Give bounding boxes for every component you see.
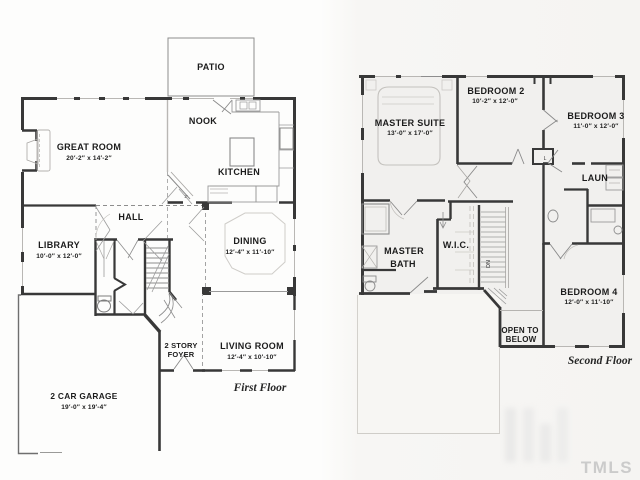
svg-text:2 CAR GARAGE: 2 CAR GARAGE [50,391,117,401]
svg-text:Second Floor: Second Floor [568,355,633,367]
svg-text:13′-0″ x 17′-0″: 13′-0″ x 17′-0″ [387,130,433,137]
svg-text:PATIO: PATIO [197,62,225,72]
svg-text:2′: 2′ [184,194,188,199]
svg-text:19′-0″ x 19′-4″: 19′-0″ x 19′-4″ [61,404,107,411]
svg-text:BELOW: BELOW [506,335,537,344]
svg-text:12′-0″ x 11′-10″: 12′-0″ x 11′-10″ [564,299,613,306]
svg-text:10′-2″ x 12′-0″: 10′-2″ x 12′-0″ [472,98,518,105]
svg-text:LIVING ROOM: LIVING ROOM [220,341,284,351]
svg-text:L: L [544,156,547,162]
svg-text:20′-2″ x 14′-2″: 20′-2″ x 14′-2″ [66,155,112,162]
svg-text:LIBRARY: LIBRARY [38,240,80,250]
svg-text:DINING: DINING [233,236,266,246]
svg-text:MASTER: MASTER [384,246,424,256]
svg-text:11′-0″ x 12′-0″: 11′-0″ x 12′-0″ [573,123,618,130]
svg-text:MASTER SUITE: MASTER SUITE [375,118,446,128]
svg-text:TMLS: TMLS [581,458,633,477]
svg-text:First Floor: First Floor [233,382,287,394]
svg-text:BEDROOM 2: BEDROOM 2 [467,86,524,96]
svg-text:HALL: HALL [118,212,143,222]
svg-text:12′-4″ x 11′-10″: 12′-4″ x 11′-10″ [225,249,274,256]
svg-text:BATH: BATH [390,259,416,269]
svg-text:FOYER: FOYER [168,350,195,359]
svg-text:12′-4″ x 10′-10″: 12′-4″ x 10′-10″ [227,354,276,361]
svg-text:OPEN TO: OPEN TO [501,326,538,335]
svg-text:W.I.C.: W.I.C. [443,240,469,250]
svg-text:BEDROOM 4: BEDROOM 4 [560,287,617,297]
svg-text:LAUN: LAUN [582,173,608,183]
svg-text:NOOK: NOOK [189,116,217,126]
svg-text:KITCHEN: KITCHEN [218,167,260,177]
svg-text:BEDROOM 3: BEDROOM 3 [567,111,624,121]
svg-text:DN: DN [486,260,492,268]
svg-text:10′-0″ x 12′-0″: 10′-0″ x 12′-0″ [36,253,82,260]
svg-text:2 STORY: 2 STORY [164,341,197,350]
svg-text:GREAT ROOM: GREAT ROOM [57,142,121,152]
